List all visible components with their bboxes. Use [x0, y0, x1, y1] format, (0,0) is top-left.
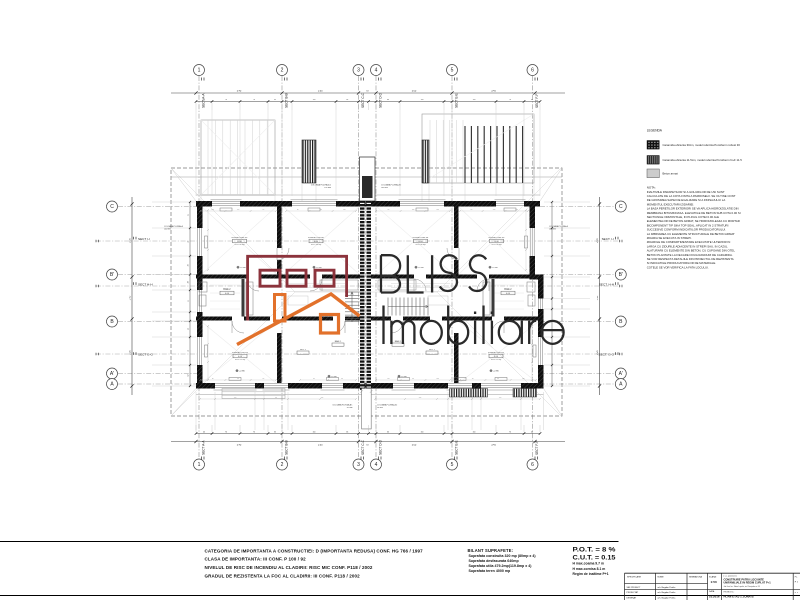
svg-text:BAIE 1: BAIE 1: [395, 340, 402, 343]
svg-text:90: 90: [387, 209, 389, 211]
svg-text:65: 65: [188, 214, 190, 216]
svg-text:SECT. H-H: SECT. H-H: [599, 283, 614, 287]
svg-text:DORMITOR 01: DORMITOR 01: [488, 352, 504, 354]
svg-text:70: 70: [509, 99, 511, 101]
svg-text:3.45: 3.45: [491, 90, 496, 92]
svg-text:90: 90: [412, 378, 414, 380]
svg-text:70: 70: [253, 431, 255, 433]
svg-text:SEF PROIECT: SEF PROIECT: [627, 587, 642, 589]
svg-text:100 MM: 100 MM: [164, 229, 171, 231]
svg-text:BILANT SUPRAFETE:: BILANT SUPRAFETE:: [468, 548, 514, 553]
svg-text:4: 4: [375, 68, 378, 74]
svg-text:40: 40: [531, 431, 533, 433]
svg-text:205: 205: [321, 397, 324, 399]
svg-text:205: 205: [419, 397, 422, 399]
svg-text:SECT. I-I: SECT. I-I: [602, 237, 615, 241]
svg-text:S=12.48 mp: S=12.48 mp: [415, 244, 425, 246]
svg-text:H max.coama 9.7 m: H max.coama 9.7 m: [573, 562, 604, 566]
svg-text:Beton armat: Beton armat: [663, 171, 678, 175]
svg-text:SECT H-H: SECT H-H: [138, 283, 153, 287]
svg-text:70: 70: [509, 431, 511, 433]
svg-text:NUME: NUME: [658, 577, 665, 579]
svg-text:200: 200: [436, 378, 439, 380]
svg-text:55: 55: [188, 300, 190, 302]
svg-text:HOL 1: HOL 1: [429, 349, 436, 351]
svg-text:( s.c. proiectant ): ( s.c. proiectant ): [724, 575, 738, 578]
svg-text:BAIE 1: BAIE 1: [335, 340, 342, 343]
svg-text:110: 110: [313, 99, 316, 101]
svg-text:60: 60: [387, 431, 389, 433]
svg-text:70: 70: [188, 241, 190, 243]
svg-text:50 MM: 50 MM: [377, 407, 383, 409]
svg-text:Suprafata utila 479.2mp(119.8m: Suprafata utila 479.2mp(119.8mp x 4): [469, 564, 533, 568]
svg-text:SECT F-F: SECT F-F: [535, 441, 539, 455]
svg-text:SECT I-I: SECT I-I: [138, 237, 150, 241]
svg-text:52: 52: [188, 375, 190, 377]
svg-text:3.05: 3.05: [412, 90, 417, 92]
svg-text:Regim de inaltime P+1: Regim de inaltime P+1: [573, 572, 609, 576]
svg-text:DORMITOR 01: DORMITOR 01: [232, 352, 248, 354]
svg-text:2.35: 2.35: [130, 238, 132, 243]
svg-text:200: 200: [493, 209, 496, 211]
svg-text:2: 2: [281, 68, 284, 74]
svg-text:+2.86: +2.86: [401, 376, 407, 378]
svg-text:1: 1: [198, 68, 201, 74]
svg-text:CATEGORIA DE IMPORTANTA A CO: CATEGORIA DE IMPORTANTA A CONSTRUCTIEI: …: [205, 548, 424, 553]
svg-text:35: 35: [274, 99, 276, 101]
svg-text:110: 110: [421, 99, 424, 101]
svg-text:Suprafata construita 320 mp (8: Suprafata construita 320 mp (80mp x 4): [469, 554, 537, 558]
svg-text:Caramida eficienta 30cm, model: Caramida eficienta 30cm, model referinta…: [663, 143, 741, 147]
svg-text:DATA:: DATA:: [709, 590, 715, 593]
svg-text:arh. Bogdan Petrila: arh. Bogdan Petrila: [658, 591, 677, 594]
svg-text:85: 85: [472, 378, 474, 380]
svg-text:BAIE 2: BAIE 2: [223, 288, 231, 291]
svg-text:10.2016: 10.2016: [709, 594, 720, 598]
svg-text:200: 200: [343, 209, 346, 211]
svg-text:NOTA:: NOTA:: [647, 185, 656, 189]
svg-text:100 MM: 100 MM: [324, 187, 331, 189]
svg-text:3.45: 3.45: [491, 444, 496, 446]
svg-text:DORMITOR 03: DORMITOR 03: [489, 237, 505, 239]
svg-text:SECT B-B: SECT B-B: [285, 440, 289, 455]
svg-text:1:50: 1:50: [711, 580, 717, 584]
svg-text:70: 70: [188, 350, 190, 352]
svg-text:90: 90: [470, 209, 472, 211]
svg-text:S=12.98 mp: S=12.98 mp: [491, 244, 501, 246]
svg-text:5: 5: [451, 462, 454, 468]
svg-text:+2.86: +2.86: [239, 371, 245, 373]
svg-text:90: 90: [212, 378, 214, 380]
svg-text:90: 90: [497, 378, 499, 380]
svg-text:P.O.T. = 8 %: P.O.T. = 8 %: [573, 546, 616, 553]
svg-text:A': A': [619, 371, 623, 377]
svg-text:110: 110: [473, 99, 476, 101]
svg-text:SECT E-E: SECT E-E: [455, 440, 459, 455]
svg-text:COTELE SE VOR VERIFICA LA FATA: COTELE SE VOR VERIFICA LA FATA LOCULUI.: [647, 265, 709, 269]
svg-text:B': B': [110, 272, 114, 278]
svg-text:2: 2: [281, 462, 284, 468]
svg-text:3.45: 3.45: [237, 90, 242, 92]
svg-text:SECT F-F: SECT F-F: [535, 94, 539, 108]
svg-text:85: 85: [313, 378, 315, 380]
svg-text:40: 40: [203, 431, 205, 433]
svg-text:50 MM: 50 MM: [347, 407, 353, 409]
svg-text:SECT B-B: SECT B-B: [285, 93, 289, 108]
svg-text:100 MM: 100 MM: [549, 229, 556, 231]
svg-text:SECT D-D: SECT D-D: [379, 92, 383, 108]
svg-text:38: 38: [188, 281, 190, 283]
svg-text:200: 200: [522, 378, 525, 380]
svg-text:LEGENDA: LEGENDA: [647, 129, 663, 133]
svg-text:S=12.48 mp: S=12.48 mp: [311, 244, 321, 246]
svg-text:2.20: 2.20: [130, 350, 132, 355]
svg-text:CLASA DE IMPORTANTA: III CONF.: CLASA DE IMPORTANTA: III CONF. P 100 / 9…: [205, 557, 307, 562]
svg-text:3: 3: [357, 68, 360, 74]
svg-text:H max.cornisa 8.1 m: H max.cornisa 8.1 m: [573, 567, 606, 571]
svg-text:PLAN ETAJ 1 ZONA B: PLAN ETAJ 1 ZONA B: [724, 595, 754, 599]
svg-text:+2.86: +2.86: [418, 267, 424, 269]
svg-text:SECT D-D: SECT D-D: [379, 439, 383, 455]
svg-text:S=16.25 mp: S=16.25 mp: [491, 359, 501, 361]
svg-text:1: 1: [198, 462, 201, 468]
svg-text:HOL 1: HOL 1: [300, 349, 307, 351]
svg-text:3.05: 3.05: [318, 444, 323, 446]
svg-text:+2.86: +2.86: [240, 267, 246, 269]
svg-text:90: 90: [237, 378, 239, 380]
svg-text:120: 120: [515, 209, 518, 211]
svg-text:SECT A-A: SECT A-A: [202, 440, 206, 455]
svg-text:BAIE 2: BAIE 2: [504, 288, 512, 291]
svg-text:56: 56: [346, 99, 348, 101]
svg-text:SECT G-G: SECT G-G: [138, 353, 153, 357]
svg-text:DORMITOR 03: DORMITOR 03: [232, 237, 248, 239]
svg-text:1.40: 1.40: [597, 295, 599, 300]
svg-text:70: 70: [253, 99, 255, 101]
svg-text:90: 90: [341, 378, 343, 380]
svg-text:40: 40: [531, 99, 533, 101]
svg-text:SECT E-E: SECT E-E: [455, 93, 459, 108]
svg-text:SECT A-A: SECT A-A: [202, 93, 206, 108]
svg-text:+2.86: +2.86: [331, 376, 337, 378]
svg-text:Caramida eficienta 11.5cm, mod: Caramida eficienta 11.5cm, model referin…: [663, 158, 743, 162]
svg-text:46: 46: [188, 264, 190, 266]
svg-text:UNIFAMILIALE IN REGIM CUPLAT P: UNIFAMILIALE IN REGIM CUPLAT P+1: [724, 581, 772, 585]
svg-text:SPECIFICATIE: SPECIFICATIE: [627, 576, 642, 579]
svg-text:DORMITOR 02: DORMITOR 02: [413, 237, 429, 239]
svg-text:DORMITOR 02: DORMITOR 02: [308, 237, 324, 239]
svg-text:S=12.98 mp: S=12.98 mp: [234, 244, 244, 246]
svg-text:90: 90: [320, 209, 322, 211]
svg-text:C: C: [110, 204, 114, 210]
svg-text:85: 85: [262, 209, 264, 211]
svg-text:1.40: 1.40: [130, 295, 132, 300]
svg-text:COLOANA PLUVIALA: COLOANA PLUVIALA: [164, 225, 183, 228]
svg-text:+2.86: +2.86: [493, 371, 499, 373]
svg-text:SECT C-C: SECT C-C: [361, 92, 365, 108]
svg-text:110: 110: [473, 431, 476, 433]
svg-text:GRADUL DE REZISTENTA LA FOC AL: GRADUL DE REZISTENTA LA FOC AL CLADIRII:…: [205, 573, 361, 578]
svg-text:A': A': [110, 371, 114, 377]
svg-text:6: 6: [531, 68, 534, 74]
svg-text:Jud. Iasi, loc. Valea Lupului,: Jud. Iasi, loc. Valea Lupului, str. Prin…: [724, 585, 760, 588]
svg-text:70: 70: [225, 431, 227, 433]
svg-text:B': B': [619, 272, 623, 278]
svg-text:arh. Bogdan Petrila: arh. Bogdan Petrila: [658, 586, 677, 589]
svg-text:NIVELUL DE RISC DE INCENDIU AL: NIVELUL DE RISC DE INCENDIU AL CLADIRII:…: [205, 565, 373, 570]
svg-text:SECT C-C: SECT C-C: [361, 439, 365, 455]
svg-text:90: 90: [459, 397, 461, 399]
svg-text:+2.86: +2.86: [492, 267, 498, 269]
svg-text:140: 140: [412, 209, 415, 211]
svg-text:arh. Bogdan Petrila: arh. Bogdan Petrila: [658, 597, 677, 600]
svg-text:90: 90: [297, 209, 299, 211]
svg-text:6: 6: [531, 462, 534, 468]
svg-text:C.U.T. = 0.15: C.U.T. = 0.15: [573, 554, 616, 561]
svg-text:120: 120: [499, 397, 502, 399]
svg-text:3.45: 3.45: [237, 444, 242, 446]
svg-text:200: 200: [436, 209, 439, 211]
svg-text:3: 3: [357, 462, 360, 468]
svg-text:70: 70: [225, 99, 227, 101]
svg-text:SCARA:: SCARA:: [709, 575, 717, 578]
svg-text:+2.86: +2.86: [316, 267, 322, 269]
svg-text:Suprafata desfasurata 640mp: Suprafata desfasurata 640mp: [469, 559, 520, 563]
svg-text:SEMNATURA: SEMNATURA: [689, 576, 703, 579]
svg-text:SECT. G-G: SECT. G-G: [599, 353, 615, 357]
svg-text:PROIECTUL:: PROIECTUL:: [724, 591, 735, 593]
svg-text:DESENAT: DESENAT: [627, 597, 637, 600]
svg-text:S=16.25 mp: S=16.25 mp: [235, 359, 245, 361]
svg-text:110: 110: [421, 431, 424, 433]
svg-text:140: 140: [211, 209, 214, 211]
svg-text:5: 5: [451, 68, 454, 74]
svg-text:3.05: 3.05: [412, 444, 417, 446]
svg-text:PROIECTAT: PROIECTAT: [627, 591, 639, 594]
svg-text:60: 60: [387, 99, 389, 101]
svg-text:85: 85: [262, 378, 264, 380]
svg-text:120: 120: [237, 209, 240, 211]
svg-text:35: 35: [274, 431, 276, 433]
svg-text:4: 4: [375, 462, 378, 468]
svg-text:3.05: 3.05: [318, 90, 323, 92]
svg-text:56: 56: [346, 431, 348, 433]
svg-text:120: 120: [387, 378, 390, 380]
svg-text:100 MM: 100 MM: [381, 187, 388, 189]
svg-text:Suprafata teren 4000 mp: Suprafata teren 4000 mp: [469, 569, 512, 573]
svg-text:2.35: 2.35: [597, 238, 599, 243]
svg-text:110: 110: [313, 431, 316, 433]
svg-text:40: 40: [188, 328, 190, 330]
svg-text:C: C: [619, 204, 623, 210]
